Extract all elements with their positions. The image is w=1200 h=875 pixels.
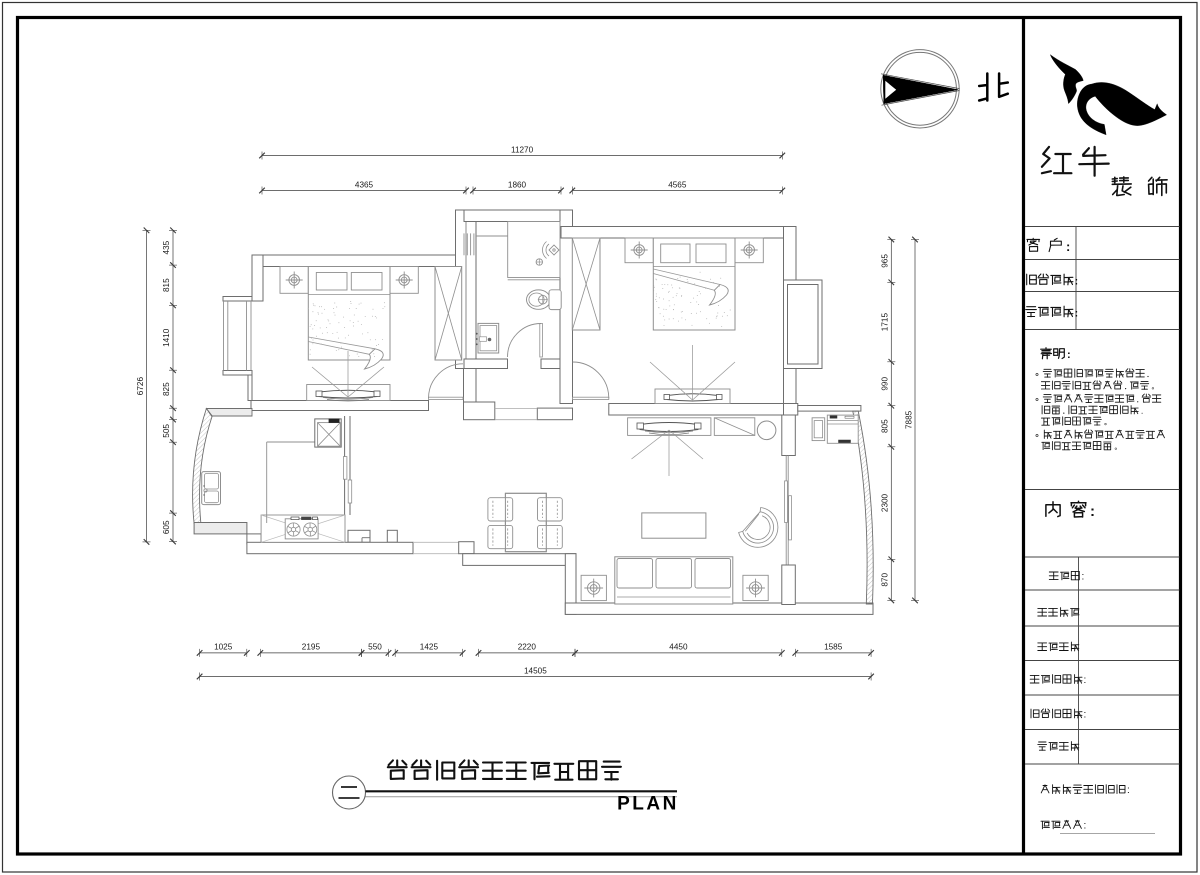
svg-text:7885: 7885 xyxy=(905,410,914,429)
svg-text:1025: 1025 xyxy=(214,643,233,652)
svg-text:505: 505 xyxy=(162,424,171,438)
svg-text:435: 435 xyxy=(162,240,171,254)
svg-text:4365: 4365 xyxy=(355,180,374,189)
svg-text:2300: 2300 xyxy=(881,493,890,512)
svg-text:4565: 4565 xyxy=(668,180,687,189)
svg-text::: : xyxy=(1075,276,1079,288)
svg-text:990: 990 xyxy=(881,377,890,391)
svg-text:805: 805 xyxy=(881,419,890,433)
svg-text:1715: 1715 xyxy=(881,313,890,332)
svg-text:2195: 2195 xyxy=(302,643,321,652)
svg-text:2220: 2220 xyxy=(518,643,537,652)
svg-text:1425: 1425 xyxy=(420,643,439,652)
svg-text:11270: 11270 xyxy=(511,145,534,154)
svg-text:14505: 14505 xyxy=(524,666,547,675)
svg-text::: : xyxy=(1090,503,1095,520)
svg-text::: : xyxy=(1127,785,1130,796)
svg-text:1860: 1860 xyxy=(508,180,527,189)
svg-text:PLAN: PLAN xyxy=(617,794,679,815)
svg-text::: : xyxy=(1084,821,1087,832)
svg-text:605: 605 xyxy=(162,520,171,534)
svg-text::: : xyxy=(1084,710,1087,721)
svg-text:550: 550 xyxy=(368,643,382,652)
svg-text::: : xyxy=(1066,239,1070,254)
svg-text:825: 825 xyxy=(162,382,171,396)
svg-text::: : xyxy=(1067,349,1071,361)
svg-text::: : xyxy=(1075,308,1079,320)
svg-text:870: 870 xyxy=(881,573,890,587)
svg-text:1410: 1410 xyxy=(162,328,171,347)
svg-text:1585: 1585 xyxy=(824,643,843,652)
svg-text:965: 965 xyxy=(881,254,890,268)
svg-text:6726: 6726 xyxy=(136,377,145,396)
svg-text:4450: 4450 xyxy=(669,643,688,652)
svg-text:815: 815 xyxy=(162,278,171,292)
svg-text::: : xyxy=(1082,572,1085,583)
svg-text::: : xyxy=(1084,675,1087,686)
